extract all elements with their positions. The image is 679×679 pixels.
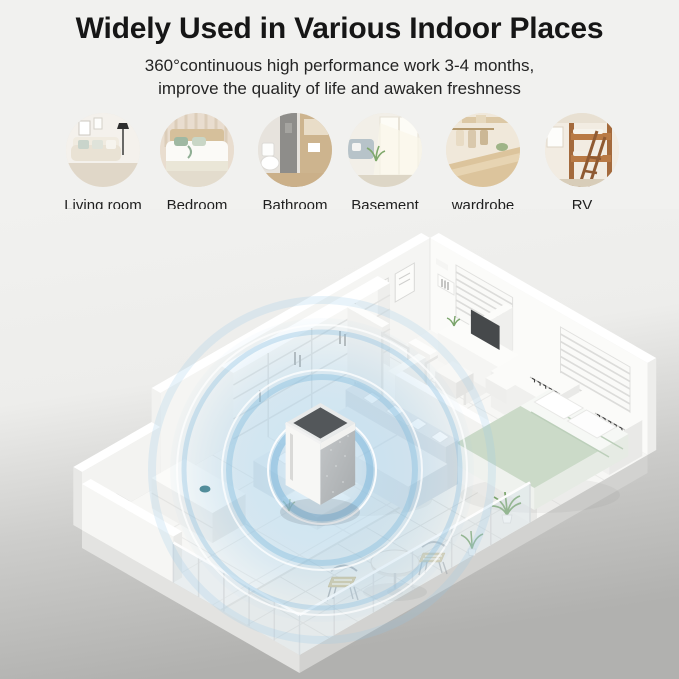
- place-bedroom: Bedroom: [149, 113, 245, 214]
- header: Widely Used in Various Indoor Places 360…: [0, 12, 679, 100]
- place-basement: Basement: [337, 113, 433, 214]
- floorplan-scene: [0, 209, 679, 679]
- basement-image: [348, 113, 422, 187]
- place-living-room: Living room: [55, 113, 151, 214]
- page-title: Widely Used in Various Indoor Places: [0, 12, 679, 46]
- air-purifier: [280, 403, 360, 526]
- bathroom-image: [258, 113, 332, 187]
- vent-slot: [290, 433, 293, 481]
- place-thumbnails-row: Living room: [0, 113, 679, 213]
- bedroom-image: [160, 113, 234, 187]
- product-infographic: Widely Used in Various Indoor Places 360…: [0, 0, 679, 679]
- wardrobe-image: [446, 113, 520, 187]
- rv-image: [545, 113, 619, 187]
- subtitle: 360°continuous high performance work 3-4…: [0, 54, 679, 100]
- subtitle-line-1: 360°continuous high performance work 3-4…: [0, 54, 679, 77]
- subtitle-line-2: improve the quality of life and awaken f…: [0, 77, 679, 100]
- place-bathroom: Bathroom: [247, 113, 343, 214]
- place-wardrobe: wardrobe: [435, 113, 531, 214]
- living-room-image: [66, 113, 140, 187]
- place-rv: RV: [534, 113, 630, 214]
